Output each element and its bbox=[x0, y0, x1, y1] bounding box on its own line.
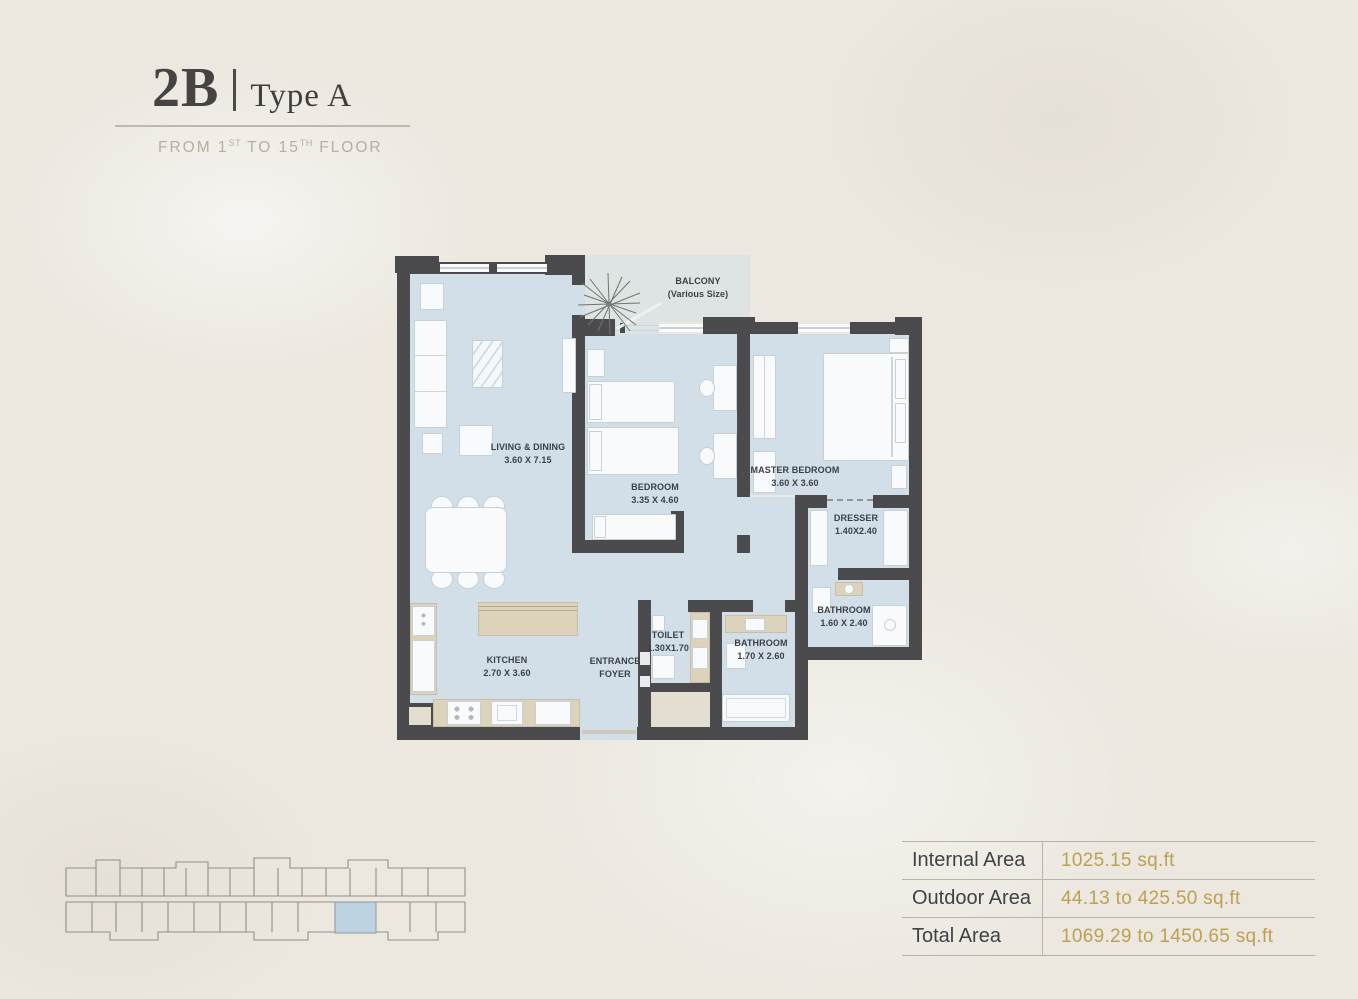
wall-segment bbox=[688, 600, 753, 612]
sofa-seam bbox=[415, 355, 446, 356]
room-name: LIVING & DINING bbox=[491, 442, 566, 452]
bed-pillow bbox=[895, 403, 906, 443]
bedroom-wardrobe bbox=[587, 349, 605, 377]
room-name: FOYER bbox=[599, 669, 631, 679]
unit-code: 2B bbox=[152, 60, 219, 116]
label-kitchen: KITCHEN 2.70 X 3.60 bbox=[483, 654, 530, 679]
bedroom-desk bbox=[713, 433, 737, 479]
label-toilet: TOILET 1.30X1.70 bbox=[647, 629, 689, 654]
room-name: BATHROOM bbox=[817, 605, 870, 615]
wall-segment bbox=[838, 568, 909, 580]
sink-basin bbox=[844, 584, 854, 594]
wall-segment bbox=[703, 317, 755, 334]
wall-segment bbox=[737, 535, 750, 553]
window bbox=[798, 324, 850, 332]
area-label: Outdoor Area bbox=[902, 880, 1043, 917]
wall-segment bbox=[710, 612, 722, 727]
area-value: 1025.15 sq.ft bbox=[1043, 842, 1315, 879]
area-table: Internal Area 1025.15 sq.ft Outdoor Area… bbox=[902, 841, 1315, 956]
bedroom-desk bbox=[713, 365, 737, 411]
wall-segment bbox=[795, 495, 808, 740]
room-name: ENTRANCE bbox=[590, 656, 641, 666]
plant-icon bbox=[578, 273, 642, 337]
room-name: TOILET bbox=[652, 630, 684, 640]
wall-segment bbox=[397, 262, 410, 740]
sink-basin bbox=[745, 618, 765, 631]
room-dim: 3.60 X 7.15 bbox=[504, 455, 551, 465]
header-rule bbox=[115, 125, 410, 127]
table-row: Internal Area 1025.15 sq.ft bbox=[902, 841, 1315, 879]
window-mullion bbox=[489, 262, 497, 274]
room-dim: (Various Size) bbox=[668, 289, 728, 299]
kitchen-stove bbox=[447, 701, 481, 725]
sofa-seam bbox=[415, 391, 446, 392]
label-dresser: DRESSER 1.40X2.40 bbox=[834, 512, 878, 537]
shaft-area bbox=[651, 692, 710, 727]
label-entrance-foyer: ENTRANCE FOYER bbox=[590, 655, 641, 680]
room-dim: 1.30X1.70 bbox=[647, 643, 689, 653]
furniture-rug bbox=[472, 340, 503, 388]
label-master-bedroom: MASTER BEDROOM 3.60 X 3.60 bbox=[751, 464, 840, 489]
area-value: 44.13 to 425.50 sq.ft bbox=[1043, 880, 1315, 917]
room-name: KITCHEN bbox=[487, 655, 528, 665]
wall-corner bbox=[395, 256, 439, 273]
wall-segment bbox=[637, 727, 808, 740]
floor-range-part: TO 15 bbox=[241, 139, 300, 156]
room-name: BALCONY bbox=[675, 276, 720, 286]
room-dim: 3.35 X 4.60 bbox=[631, 495, 678, 505]
label-balcony: BALCONY (Various Size) bbox=[668, 275, 728, 300]
wall-segment bbox=[755, 322, 798, 334]
floor-range-part: FROM 1 bbox=[158, 139, 229, 156]
wall-segment bbox=[795, 647, 922, 660]
floor-plan: BALCONY (Various Size) LIVING & DINING 3… bbox=[395, 253, 935, 745]
kitchen-sink-basin bbox=[497, 705, 517, 721]
area-value: 1069.29 to 1450.65 sq.ft bbox=[1043, 918, 1315, 955]
room-dim: 3.60 X 3.60 bbox=[771, 478, 818, 488]
label-bathroom: BATHROOM 1.70 X 2.60 bbox=[734, 637, 787, 662]
headboard-line bbox=[891, 357, 893, 457]
furniture-tv-console bbox=[562, 338, 576, 393]
room-name: BEDROOM bbox=[631, 482, 679, 492]
floor-range-part: FLOOR bbox=[313, 139, 383, 156]
kitchen-cabinet bbox=[412, 640, 435, 692]
table-row: Total Area 1069.29 to 1450.65 sq.ft bbox=[902, 917, 1315, 955]
area-label: Internal Area bbox=[902, 842, 1043, 879]
dresser-closet bbox=[810, 510, 828, 566]
wall-segment bbox=[909, 322, 922, 660]
cabinet-box bbox=[692, 647, 708, 669]
kitchen-fridge bbox=[412, 606, 435, 636]
door-jamb-slit bbox=[640, 676, 650, 687]
island-edge-line bbox=[479, 610, 577, 611]
sliding-door-line bbox=[827, 499, 873, 501]
window bbox=[659, 324, 703, 332]
wall-segment bbox=[850, 322, 900, 334]
dresser-closet bbox=[883, 510, 908, 566]
furniture-side-table bbox=[422, 433, 443, 454]
kitchen-appliance bbox=[535, 701, 571, 725]
wall-segment bbox=[873, 495, 922, 508]
bathtub-inner bbox=[726, 698, 786, 718]
kitchen-island bbox=[478, 602, 578, 636]
area-label: Total Area bbox=[902, 918, 1043, 955]
furniture-sofa bbox=[414, 320, 447, 428]
header: 2B Type A FROM 1ST TO 15TH FLOOR bbox=[115, 60, 410, 157]
bed-pillow bbox=[895, 359, 906, 399]
wall-segment bbox=[795, 495, 827, 508]
bed-pillow bbox=[594, 516, 606, 538]
building-keyplan bbox=[58, 852, 473, 944]
bed-pillow bbox=[589, 384, 602, 420]
furniture-dining-table bbox=[425, 507, 507, 573]
furniture-armchair bbox=[459, 425, 493, 456]
room-dim: 1.40X2.40 bbox=[835, 526, 877, 536]
wall-segment bbox=[785, 600, 797, 612]
room-dim: 2.70 X 3.60 bbox=[483, 668, 530, 678]
wall-segment bbox=[737, 334, 750, 497]
room-name: BATHROOM bbox=[734, 638, 787, 648]
island-edge-line bbox=[479, 606, 577, 607]
title-divider-bar bbox=[233, 69, 236, 111]
wall-segment bbox=[645, 683, 722, 692]
label-master-bathroom: BATHROOM 1.60 X 2.40 bbox=[817, 604, 870, 629]
room-name: DRESSER bbox=[834, 513, 878, 523]
label-bedroom: BEDROOM 3.35 X 4.60 bbox=[631, 481, 679, 506]
wall-column-fill bbox=[409, 707, 431, 725]
desk-chair bbox=[699, 379, 715, 397]
wall-segment bbox=[585, 540, 671, 553]
floor-range: FROM 1ST TO 15TH FLOOR bbox=[115, 138, 410, 157]
floor-area bbox=[572, 553, 638, 740]
unit-title: 2B Type A bbox=[115, 60, 410, 116]
unit-type: Type A bbox=[250, 80, 352, 113]
cabinet-box bbox=[692, 619, 708, 639]
bed-pillow bbox=[589, 431, 602, 471]
entrance-threshold bbox=[582, 730, 636, 734]
floor-range-sup: TH bbox=[300, 138, 313, 148]
wall-corner bbox=[545, 255, 585, 275]
room-name: MASTER BEDROOM bbox=[751, 465, 840, 475]
master-nightstand bbox=[891, 465, 907, 489]
master-nightstand bbox=[889, 338, 909, 353]
furniture-wall-unit bbox=[420, 283, 444, 310]
shower-drain bbox=[884, 619, 896, 631]
label-living: LIVING & DINING 3.60 X 7.15 bbox=[491, 441, 566, 466]
page: { "header": { "unit_code": "2B", "divide… bbox=[0, 0, 1358, 999]
wardrobe-seam bbox=[764, 356, 765, 438]
desk-chair bbox=[699, 447, 715, 465]
floor-range-sup: ST bbox=[229, 138, 242, 148]
room-dim: 1.70 X 2.60 bbox=[737, 651, 784, 661]
table-row: Outdoor Area 44.13 to 425.50 sq.ft bbox=[902, 879, 1315, 917]
room-dim: 1.60 X 2.40 bbox=[820, 618, 867, 628]
toilet-wc bbox=[652, 655, 675, 679]
keyplan-unit-highlight bbox=[335, 902, 376, 933]
